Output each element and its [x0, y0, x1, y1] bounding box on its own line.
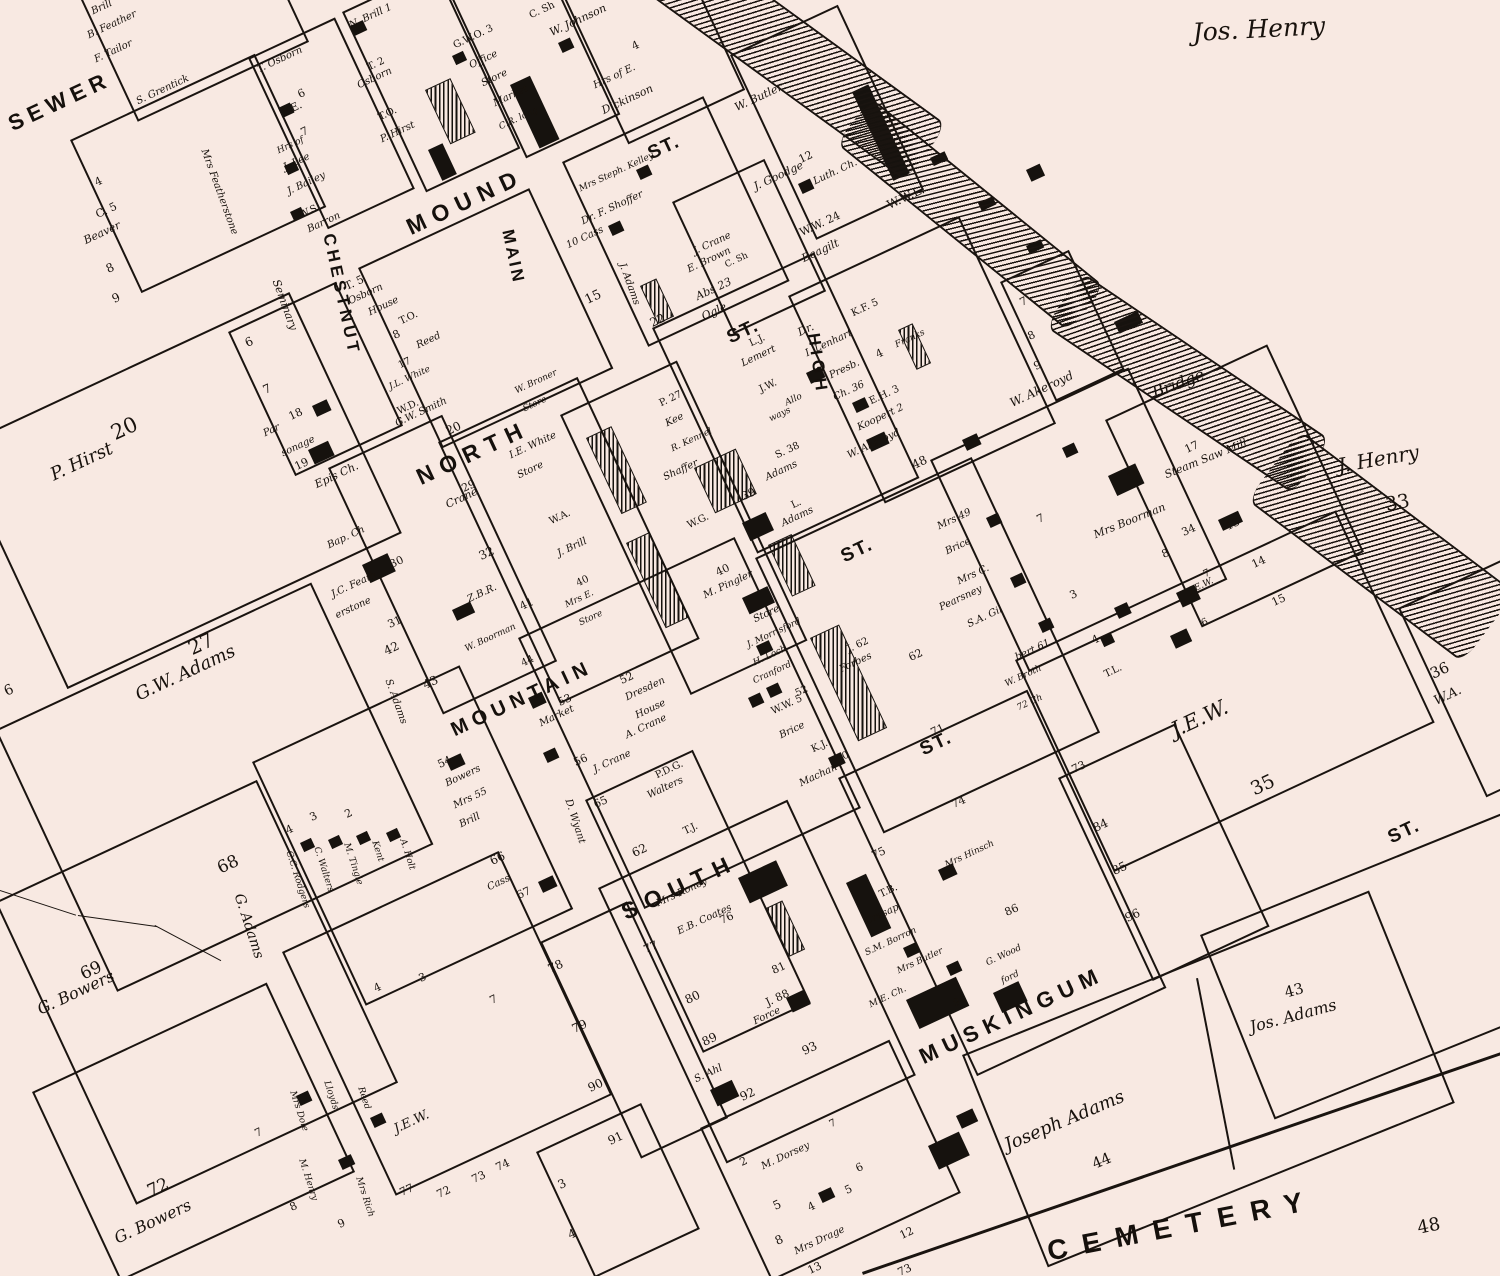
lot-label: 9	[336, 1217, 347, 1230]
lot-label: 13	[806, 1260, 823, 1276]
lot-label: 42	[382, 640, 401, 657]
lot-label: 12	[898, 1225, 915, 1241]
owner-label: J. Henry	[1336, 442, 1420, 476]
lot-label: 8	[104, 261, 116, 275]
owner-label: D. Wyant	[562, 798, 586, 845]
street-label-st: ST.	[1385, 816, 1423, 847]
lot-label: 6	[2, 682, 16, 698]
building	[956, 1108, 978, 1128]
owner-label: Beagilt	[800, 237, 841, 264]
lot-label: 9	[110, 291, 122, 305]
plat-map: SEWERMOUNDST.NORTHST.MOUNTAINST.SOUTHST.…	[0, 0, 1500, 1276]
building	[846, 874, 891, 938]
lot-label: 73	[896, 1262, 913, 1276]
lot-label: 73	[470, 1169, 487, 1185]
owner-label: erstone	[334, 596, 373, 621]
building	[543, 748, 559, 763]
owner-label: Beaver	[82, 219, 122, 246]
owner-label: J.C. Feath	[330, 570, 378, 600]
lot-label: 15	[583, 288, 603, 307]
lot-label: 8	[288, 1200, 299, 1213]
lot-label: 72	[435, 1184, 452, 1200]
owner-label: Jos. Henry	[1192, 13, 1326, 45]
street-label-sewer: SEWER	[5, 68, 115, 135]
lot-label: 74	[494, 1157, 511, 1173]
building	[1026, 164, 1045, 182]
lot-label: 48	[1416, 1216, 1442, 1238]
lot-label: 33	[1384, 492, 1411, 515]
owner-label: Mrs Rich	[353, 1176, 374, 1218]
